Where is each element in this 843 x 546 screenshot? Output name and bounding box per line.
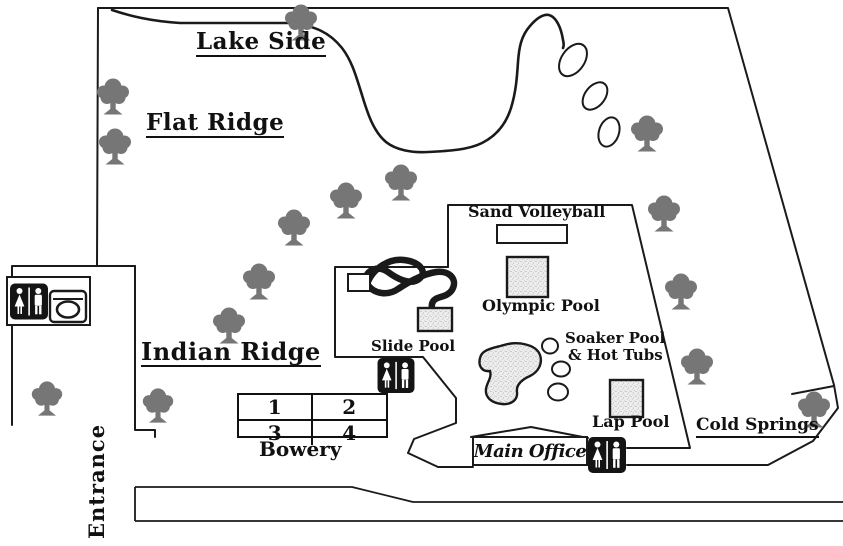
- area-label-flat-ridge: Flat Ridge: [146, 111, 284, 138]
- lake-islands: [553, 39, 623, 150]
- olympic-pool-shape: [507, 257, 548, 297]
- facility-label-soaker-pool: Soaker Pool: [565, 331, 665, 347]
- facility-label-sand-volleyball: Sand Volleyball: [468, 204, 605, 221]
- main-office-label: Main Office: [473, 437, 587, 465]
- soaker-pool-shape: [479, 343, 540, 404]
- tree-icon: [278, 210, 310, 246]
- tree-icon: [648, 196, 680, 232]
- bowery-site-2: 2: [313, 395, 387, 421]
- area-label-lake-side: Lake Side: [196, 30, 326, 57]
- tree-icon: [385, 165, 417, 201]
- volleyball-court: [497, 225, 567, 243]
- tree-icon: [631, 116, 663, 152]
- bowery-site-1: 1: [239, 395, 313, 421]
- facility-label-olympic-pool: Olympic Pool: [482, 298, 600, 315]
- tree-icon: [32, 381, 62, 415]
- restroom-icon: [10, 284, 48, 320]
- bowery-site-4: 4: [313, 421, 387, 445]
- campground-map: Lake Side Flat Ridge Indian Ridge Cold S…: [0, 0, 843, 546]
- tree-icon: [681, 349, 713, 385]
- bowery-site-3: 3: [239, 421, 313, 445]
- facility-label-slide-pool: Slide Pool: [371, 339, 455, 355]
- tree-icon: [97, 79, 129, 115]
- slide-pool-basin: [418, 308, 452, 331]
- tree-icon: [330, 183, 362, 219]
- tree-icon: [143, 388, 173, 422]
- water-slide: [348, 260, 454, 331]
- restroom-icon: [588, 437, 626, 473]
- island-ellipse: [553, 39, 592, 82]
- entrance-road: [135, 487, 843, 521]
- area-label-indian-ridge: Indian Ridge: [141, 339, 321, 367]
- island-ellipse: [578, 78, 613, 115]
- park-boundary: [12, 8, 838, 465]
- island-ellipse: [595, 115, 623, 150]
- tree-icon: [243, 264, 275, 300]
- hot-tubs: [542, 339, 570, 401]
- facility-label-lap-pool: Lap Pool: [592, 414, 669, 431]
- hot-tub: [542, 339, 558, 354]
- bowery-sites-table: 1 2 3 4: [237, 393, 388, 438]
- entrance-label: Entrance: [86, 424, 108, 539]
- hot-tub: [548, 384, 568, 401]
- tree-icon: [99, 129, 131, 165]
- facility-label-hot-tubs: & Hot Tubs: [568, 348, 663, 364]
- area-label-cold-springs: Cold Springs: [696, 417, 819, 438]
- washing-machine-icon: [50, 291, 86, 322]
- map-drawing: [0, 0, 843, 546]
- tree-icon: [665, 274, 697, 310]
- restroom-icon: [378, 358, 415, 393]
- slide-platform: [348, 274, 370, 291]
